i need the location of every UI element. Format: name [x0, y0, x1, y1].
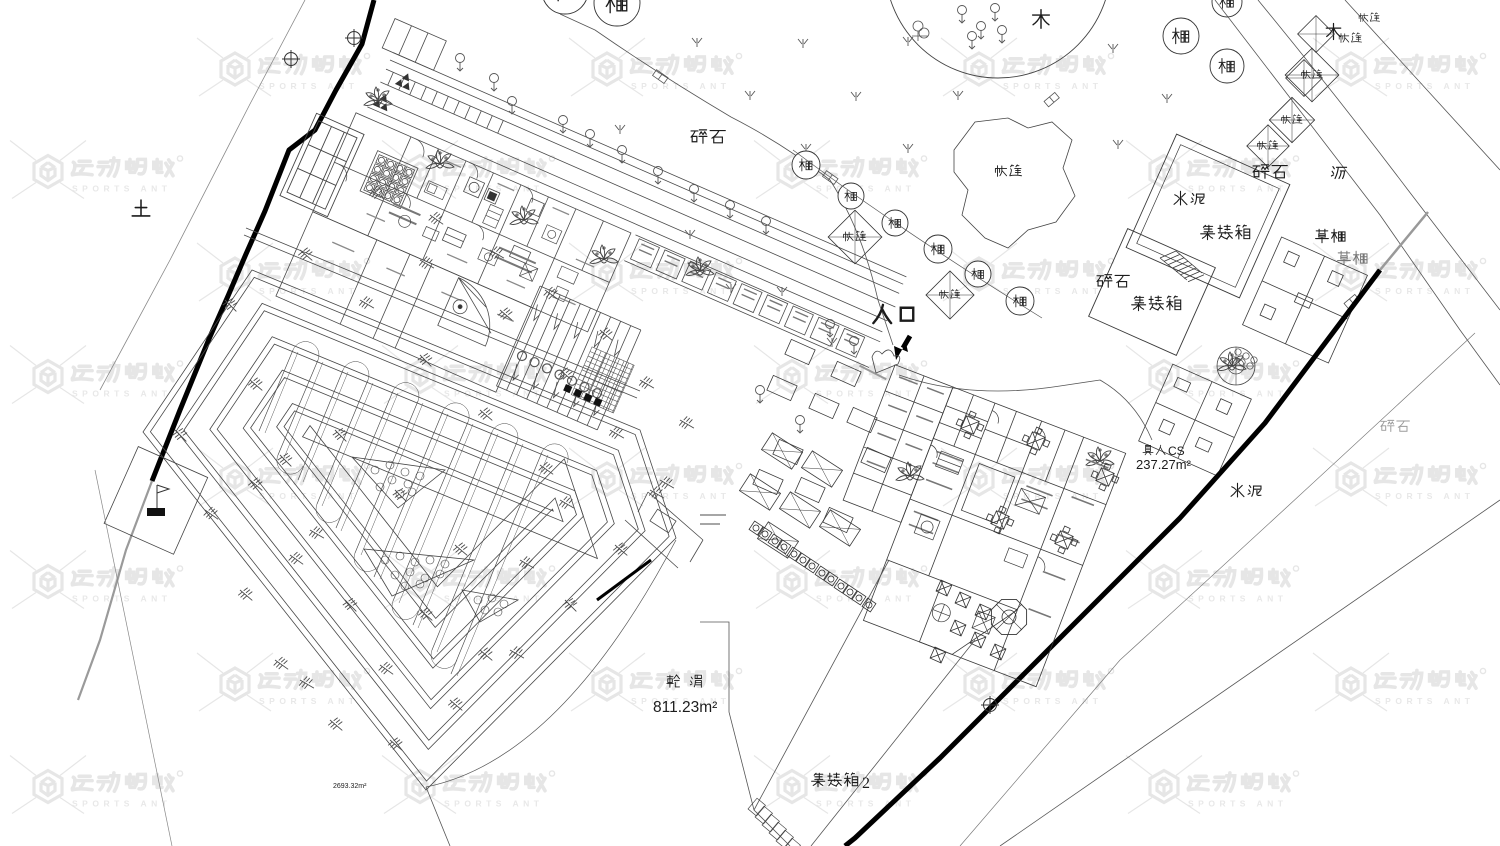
svg-text:SPORTS ANT: SPORTS ANT: [1375, 696, 1474, 706]
svg-text:2: 2: [862, 775, 870, 792]
svg-text:SPORTS ANT: SPORTS ANT: [1188, 184, 1287, 194]
svg-text:SPORTS ANT: SPORTS ANT: [72, 799, 171, 809]
svg-text:SPORTS ANT: SPORTS ANT: [444, 389, 543, 399]
svg-text:SPORTS ANT: SPORTS ANT: [1375, 491, 1474, 501]
svg-text:SPORTS ANT: SPORTS ANT: [1188, 594, 1287, 604]
svg-text:SPORTS ANT: SPORTS ANT: [259, 81, 358, 91]
svg-text:SPORTS ANT: SPORTS ANT: [1188, 799, 1287, 809]
svg-text:2693.32m²: 2693.32m²: [333, 783, 367, 790]
svg-text:SPORTS ANT: SPORTS ANT: [1375, 81, 1474, 91]
svg-text:SPORTS ANT: SPORTS ANT: [444, 799, 543, 809]
svg-text:SPORTS ANT: SPORTS ANT: [1188, 389, 1287, 399]
svg-text:SPORTS ANT: SPORTS ANT: [1375, 286, 1474, 296]
svg-text:SPORTS ANT: SPORTS ANT: [259, 491, 358, 501]
svg-text:237.27m²: 237.27m²: [1136, 457, 1192, 472]
svg-text:CS: CS: [1168, 444, 1185, 458]
svg-text:SPORTS ANT: SPORTS ANT: [816, 184, 915, 194]
svg-text:SPORTS ANT: SPORTS ANT: [72, 184, 171, 194]
svg-text:SPORTS ANT: SPORTS ANT: [72, 389, 171, 399]
svg-text:SPORTS ANT: SPORTS ANT: [816, 799, 915, 809]
svg-text:SPORTS ANT: SPORTS ANT: [816, 594, 915, 604]
svg-text:SPORTS ANT: SPORTS ANT: [259, 696, 358, 706]
svg-text:SPORTS ANT: SPORTS ANT: [631, 286, 730, 296]
svg-text:SPORTS ANT: SPORTS ANT: [259, 286, 358, 296]
svg-text:811.23m²: 811.23m²: [653, 699, 717, 716]
svg-text:SPORTS ANT: SPORTS ANT: [1003, 81, 1102, 91]
